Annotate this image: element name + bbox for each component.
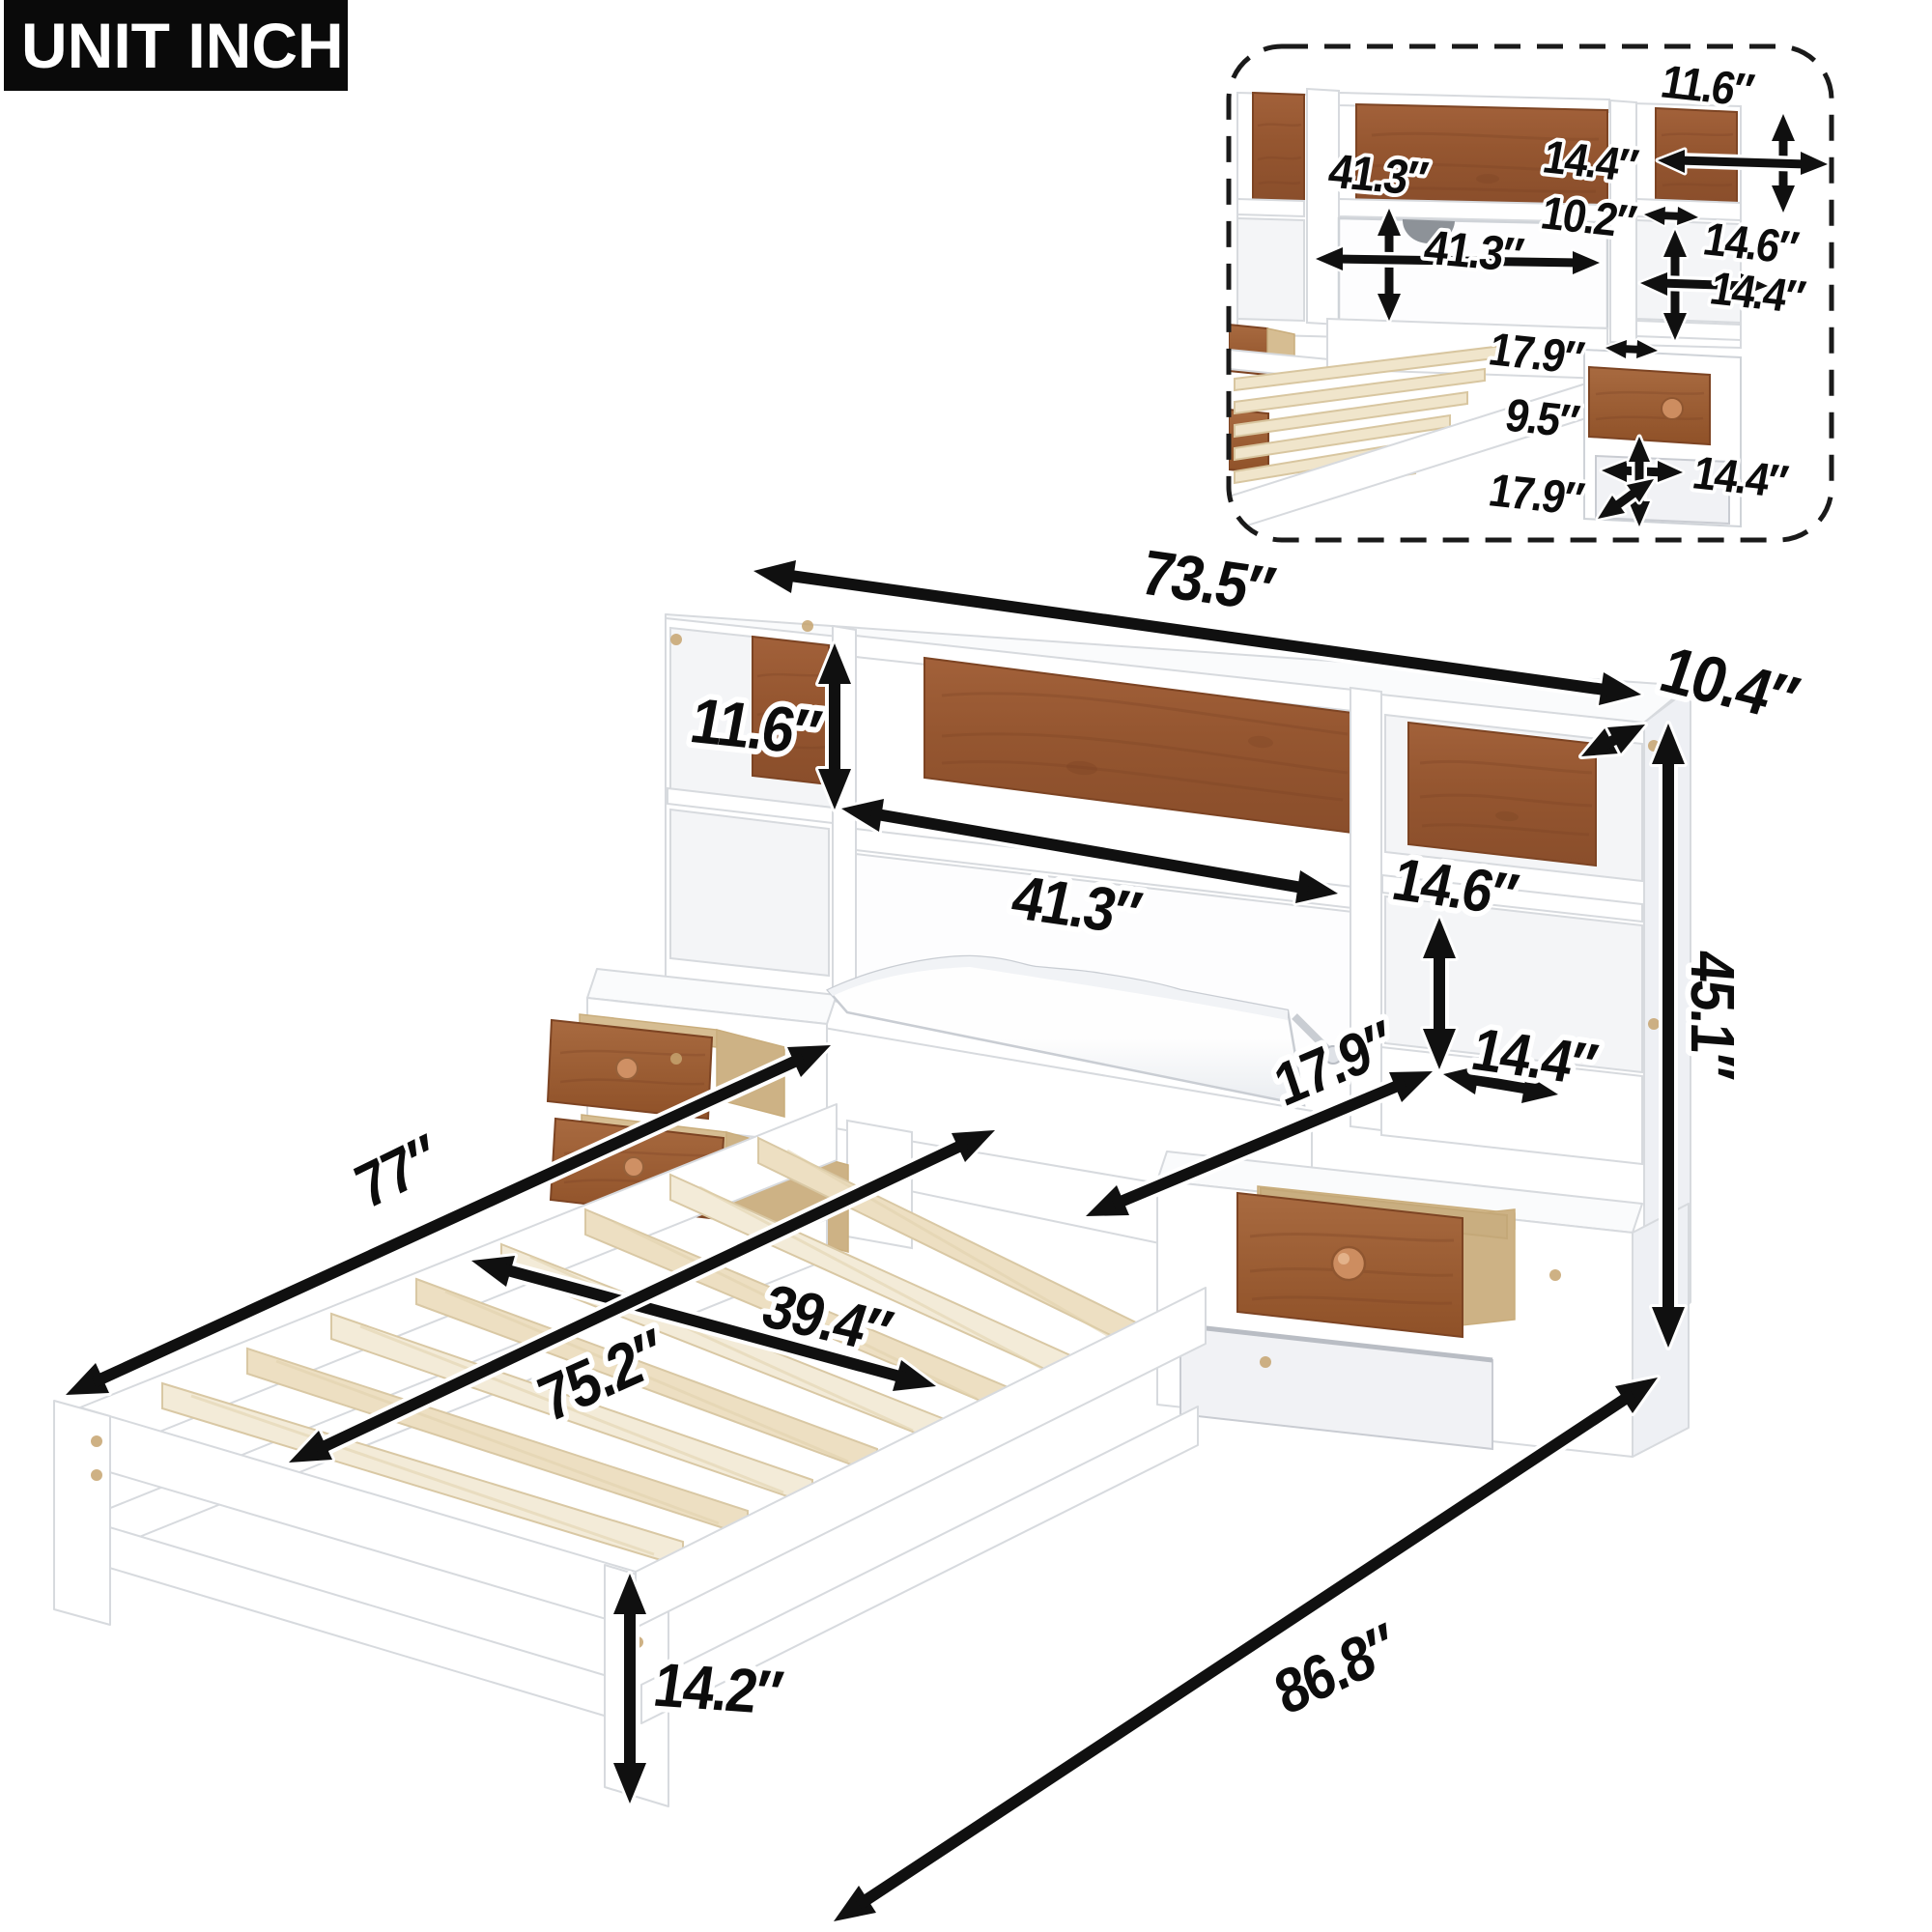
- svg-text:17.9″: 17.9″: [1485, 465, 1588, 526]
- svg-text:14.4″: 14.4″: [1706, 263, 1809, 324]
- svg-text:14.2″: 14.2″: [649, 1650, 787, 1727]
- svg-text:41.3″: 41.3″: [1324, 145, 1431, 207]
- svg-text:10.2″: 10.2″: [1537, 187, 1640, 248]
- svg-text:14.4″: 14.4″: [1689, 447, 1792, 508]
- svg-text:9.5″: 9.5″: [1501, 389, 1583, 448]
- svg-text:45.1″: 45.1″: [1678, 949, 1747, 1082]
- svg-text:41.3″: 41.3″: [1420, 221, 1526, 283]
- svg-text:11.6″: 11.6″: [1657, 56, 1758, 117]
- svg-text:14.4″: 14.4″: [1539, 131, 1642, 192]
- svg-text:17.9″: 17.9″: [1485, 324, 1588, 384]
- svg-text:UNIT INCH: UNIT INCH: [21, 10, 344, 81]
- svg-text:11.6″: 11.6″: [685, 686, 825, 769]
